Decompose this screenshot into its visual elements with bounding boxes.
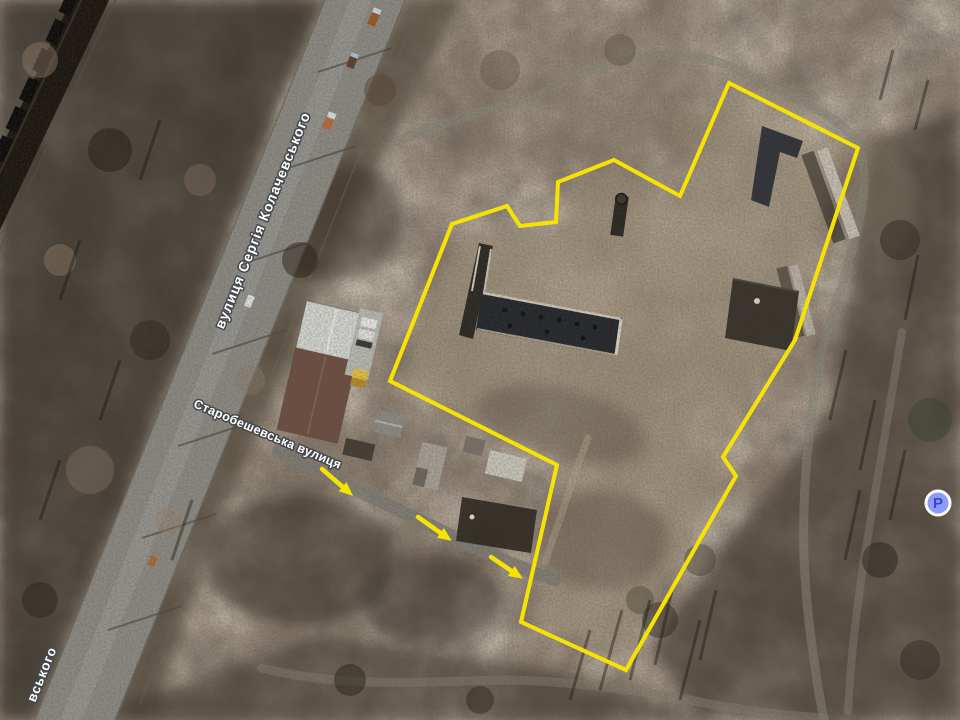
- satellite-map[interactable]: вулиця Сергія Колачевського Старобешевсь…: [0, 0, 960, 720]
- grain-overlay: [0, 0, 960, 720]
- map-viewport[interactable]: вулиця Сергія Колачевського Старобешевсь…: [0, 0, 960, 720]
- parking-icon[interactable]: P: [925, 490, 952, 517]
- parking-letter: P: [933, 495, 943, 512]
